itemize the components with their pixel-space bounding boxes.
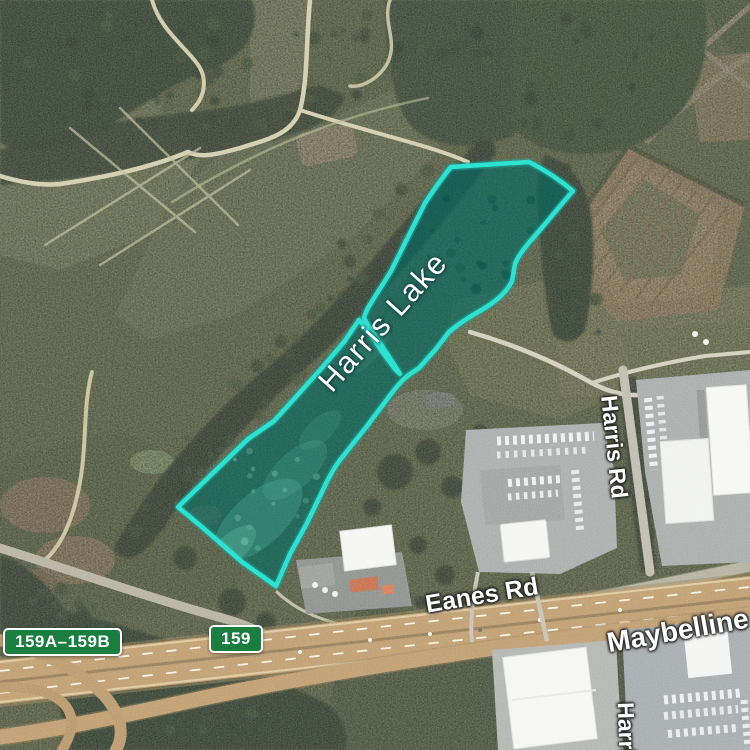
exit-badge-159a-159b: 159A–159B xyxy=(3,628,122,656)
satellite-map: Harris Lake Eanes Rd Maybelline Rd Harri… xyxy=(0,0,750,750)
road-label-harris-rd-south: Harris Rd xyxy=(612,702,643,750)
exit-badge-159: 159 xyxy=(209,625,263,653)
